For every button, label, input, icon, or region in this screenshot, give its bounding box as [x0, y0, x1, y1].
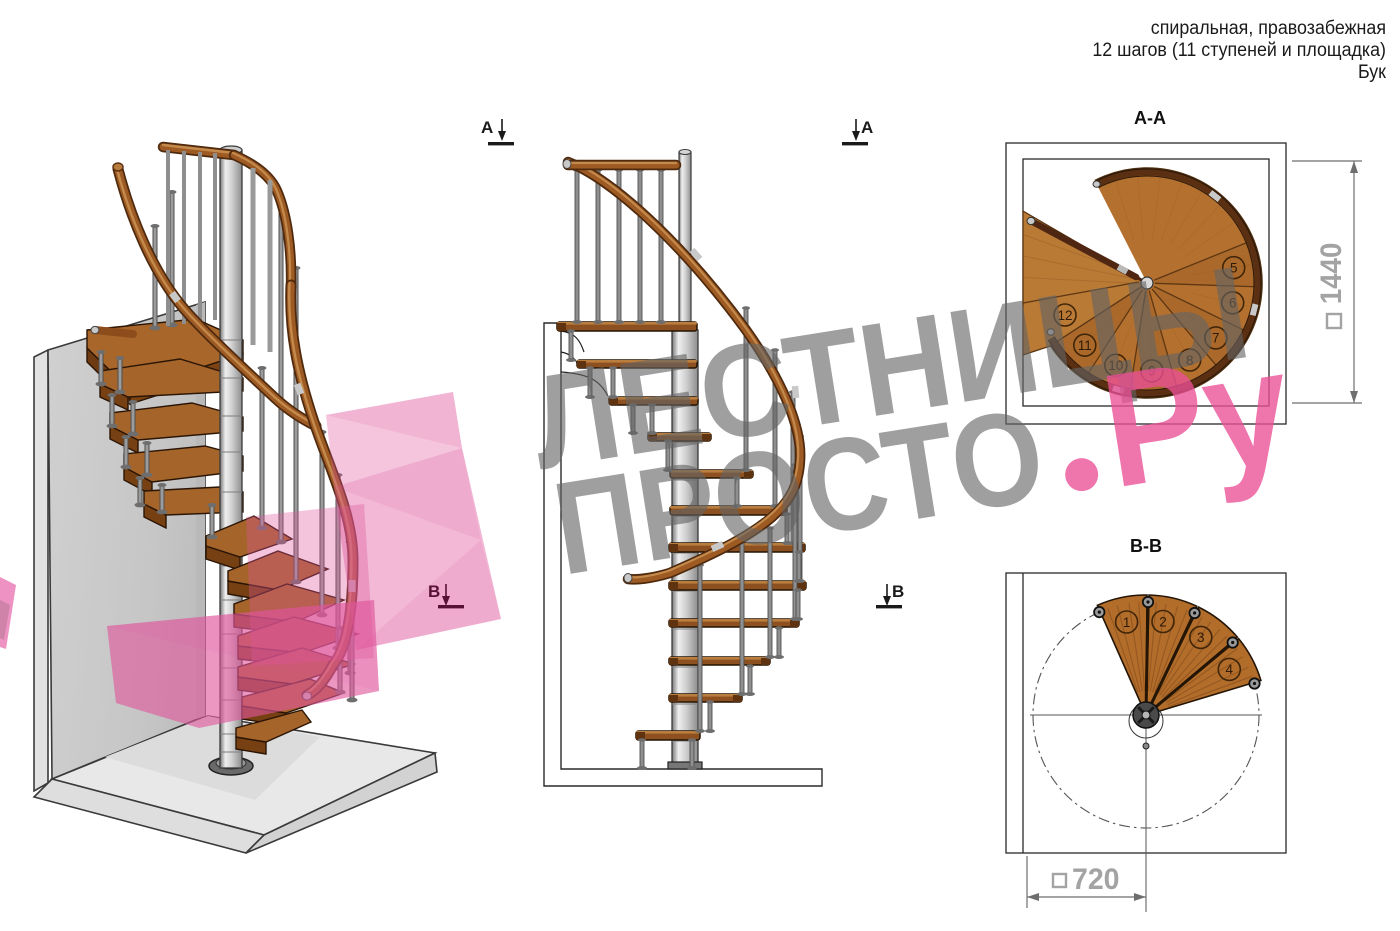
svg-text:1440: 1440	[1315, 243, 1348, 304]
svg-text:B: B	[428, 582, 440, 601]
svg-text:720: 720	[1072, 863, 1120, 896]
svg-text:Ру: Ру	[1091, 315, 1302, 523]
svg-text:2: 2	[1159, 614, 1167, 629]
svg-text:B: B	[892, 582, 904, 601]
svg-text:4: 4	[1226, 662, 1234, 677]
svg-text:спиральная, правозабежная: спиральная, правозабежная	[1151, 16, 1386, 38]
svg-text:B-B: B-B	[1130, 536, 1162, 556]
svg-text:A: A	[861, 118, 873, 137]
svg-text:12 шагов (11 ступеней и площад: 12 шагов (11 ступеней и площадка)	[1092, 38, 1386, 60]
svg-text:Бук: Бук	[1358, 60, 1387, 82]
svg-text:3: 3	[1197, 630, 1205, 645]
svg-text:A: A	[481, 118, 493, 137]
svg-text:1: 1	[1123, 615, 1131, 630]
svg-text:A-A: A-A	[1134, 108, 1166, 128]
